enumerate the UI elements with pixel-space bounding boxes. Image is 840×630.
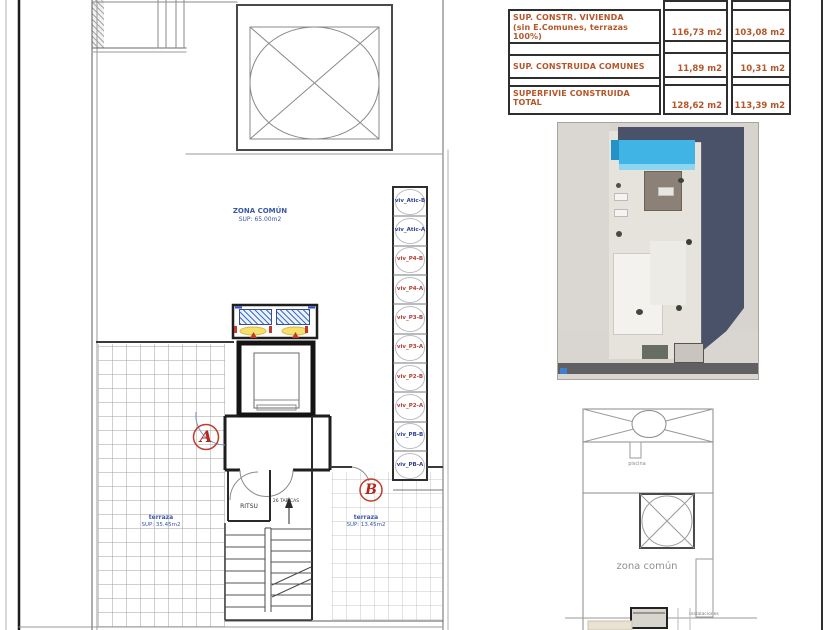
unit-label: viv_P3-B	[393, 316, 427, 322]
render-pool-shallow	[619, 164, 695, 170]
terraza-left-title: terraza	[118, 514, 204, 522]
area-table-label-column: SUP. CONSTR. VIVIENDA (sin E.Comunes, te…	[508, 9, 661, 115]
zona-comun-title: ZONA COMÚN	[215, 207, 305, 216]
row1-label-line2: (sin E.Comunes, terrazas 100%)	[513, 23, 656, 42]
unit-label: viv_PB-B	[393, 433, 427, 439]
value-cell: 11,89 m2	[665, 52, 726, 76]
tabicas-label: 26 TABICAS	[268, 499, 304, 505]
unit-label: viv_Atic-B	[393, 199, 427, 205]
aerial-render	[557, 122, 759, 380]
row1-label-line1: SUP. CONSTR. VIVIENDA	[513, 13, 656, 23]
render-plant	[616, 231, 622, 237]
render-table	[658, 187, 674, 196]
area-table-value-column-b: 103,08 m2 10,31 m2 113,39 m2	[731, 0, 791, 115]
unit-label: viv_P3-A	[393, 345, 427, 351]
zona-comun-area: SUP: 65.00m2	[215, 216, 305, 224]
unit-label: viv_P2-A	[393, 404, 427, 410]
row2-label: SUP. CONSTRUIDA COMUNES	[513, 62, 645, 72]
value-cell: 116,73 m2	[665, 9, 726, 40]
render-road	[558, 363, 758, 374]
spacer-row	[510, 77, 659, 85]
terraza-right-area: SUP: 13.45m2	[323, 522, 409, 529]
drawing-sheet: ZONA COMÚN SUP: 65.00m2 terraza SUP: 35.…	[0, 0, 840, 630]
terraza-left-area: SUP: 35.45m2	[118, 522, 204, 529]
unit-label: viv_P4-A	[393, 287, 427, 293]
spacer-row	[733, 40, 789, 52]
render-stair-bulkhead	[674, 343, 704, 363]
stub-cell	[665, 2, 726, 9]
render-road-marker	[560, 368, 567, 374]
spacer-row	[665, 76, 726, 84]
mini-instalaciones-label: instalaciones	[676, 612, 732, 618]
mini-piscina-label: piscina	[615, 461, 659, 467]
spacer-row	[665, 40, 726, 52]
unit-label: viv_PB-A	[393, 463, 427, 469]
table-row-label: SUP. CONSTRUIDA COMUNES	[510, 54, 659, 77]
zona-comun-annotation: ZONA COMÚN SUP: 65.00m2	[215, 207, 305, 223]
render-plant	[676, 305, 682, 311]
table-row-label: SUP. CONSTR. VIVIENDA (sin E.Comunes, te…	[510, 11, 659, 42]
render-plant	[616, 183, 621, 188]
spacer-row	[510, 42, 659, 54]
render-roof-wing	[650, 241, 686, 305]
row3-label-line1: SUPERFIVIE CONSTRUIDA	[513, 89, 656, 99]
render-rooftop-units	[642, 345, 668, 359]
terraza-left-annotation: terraza SUP: 35.45m2	[118, 514, 204, 528]
render-lounger	[614, 209, 628, 217]
render-plant	[678, 178, 684, 183]
ritsu-room	[228, 470, 270, 521]
value-cell: 103,08 m2	[733, 9, 789, 40]
terraza-right-annotation: terraza SUP: 13.45m2	[323, 514, 409, 528]
value-cell: 10,31 m2	[733, 52, 789, 76]
elevator-shaft	[239, 343, 313, 415]
value-cell: 128,62 m2	[665, 84, 726, 113]
row3-label-line2: TOTAL	[513, 98, 656, 108]
mini-plan-linework	[565, 409, 757, 630]
render-lounger	[614, 193, 628, 201]
unit-label: viv_P2-B	[393, 375, 427, 381]
render-pool	[619, 140, 695, 167]
spacer-row	[733, 76, 789, 84]
terraza-right-title: terraza	[323, 514, 409, 522]
section-marker-a: A	[198, 427, 214, 446]
skylight-crossed-square	[237, 5, 392, 150]
render-plant	[686, 239, 692, 245]
meter-panel-left	[239, 309, 272, 325]
render-plant	[636, 309, 643, 315]
unit-label: viv_P4-B	[393, 257, 427, 263]
value-cell: 113,39 m2	[733, 84, 789, 113]
staircase	[225, 416, 312, 620]
section-marker-b: B	[364, 482, 378, 498]
stub-cell	[733, 2, 789, 9]
mini-zona-comun-label: zona común	[605, 561, 689, 574]
meter-panel-right	[276, 309, 310, 325]
ritsu-label: RITSU	[230, 503, 268, 511]
unit-label: viv_Atic-A	[393, 228, 427, 234]
area-table-value-column-a: 116,73 m2 11,89 m2 128,62 m2	[663, 0, 728, 115]
table-row-label: SUPERFIVIE CONSTRUIDA TOTAL	[510, 85, 659, 113]
